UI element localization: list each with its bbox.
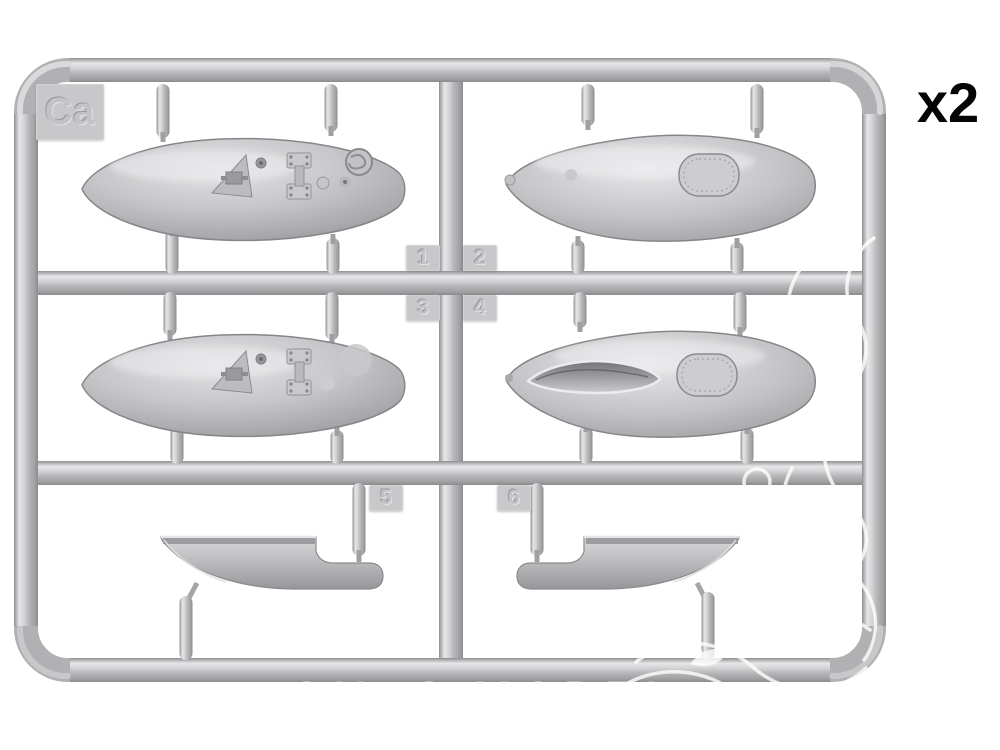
part-1-tank-half-detailed bbox=[82, 139, 405, 241]
frame-left-bar bbox=[14, 114, 38, 626]
horizontal-bar-1 bbox=[38, 271, 862, 295]
part-2-tank-half-panel bbox=[505, 135, 815, 241]
part-4-tank-half-slot bbox=[505, 331, 815, 437]
part-5-scoop-right bbox=[161, 537, 383, 589]
part-number-tab-3: 3 bbox=[406, 295, 440, 321]
sprue-render bbox=[0, 0, 1000, 750]
frame-top-bar bbox=[70, 58, 830, 82]
part-number-tab-5: 5 bbox=[369, 485, 403, 511]
sprue-photo: Ca 1 2 3 4 5 6 x2 OUPS MODEL bbox=[0, 0, 1000, 750]
part-3-tank-half-variant bbox=[82, 335, 405, 437]
horizontal-bar-2 bbox=[38, 461, 862, 485]
shop-watermark-text: OUPS MODEL bbox=[288, 672, 681, 727]
part-number-tab-4: 4 bbox=[463, 295, 497, 321]
sprue-gate-letter-tab: Ca bbox=[36, 84, 104, 140]
part-number-tab-2: 2 bbox=[463, 245, 497, 271]
quantity-label: x2 bbox=[898, 68, 998, 138]
center-vertical-bar bbox=[439, 82, 463, 658]
part-6-scoop-left bbox=[517, 537, 739, 589]
part-number-tab-1: 1 bbox=[406, 245, 440, 271]
part-number-tab-6: 6 bbox=[497, 485, 531, 511]
